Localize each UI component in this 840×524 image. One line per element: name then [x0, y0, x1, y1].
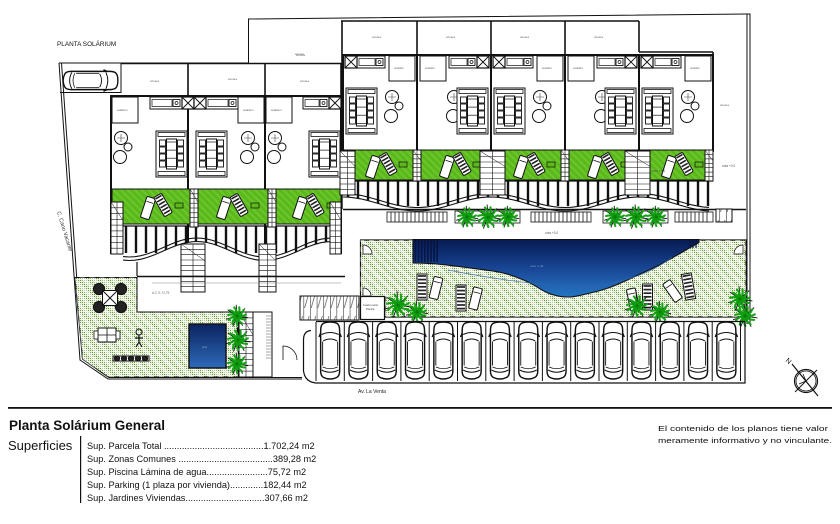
svg-text:A.C.S +2.75: A.C.S +2.75 [152, 291, 170, 295]
svg-text:cota +0.0: cota +0.0 [722, 164, 735, 168]
svg-text:cota +0.0: cota +0.0 [652, 169, 665, 173]
svg-text:PLANTA SOLÁRIUM: PLANTA SOLÁRIUM [57, 39, 116, 48]
svg-text:azotea: azotea [520, 35, 529, 39]
svg-text:El contenido de los planos tie: El contenido de los planos tiene valor [658, 424, 829, 433]
svg-text:vestidor: vestidor [542, 66, 552, 70]
svg-text:Sup. Zonas Comunes ...........: Sup. Zonas Comunes .....................… [87, 454, 316, 464]
svg-text:azotea: azotea [300, 79, 309, 83]
svg-text:azotea: azotea [372, 35, 381, 39]
svg-text:Cuarto motor: Cuarto motor [363, 303, 378, 307]
svg-text:azotea: azotea [446, 35, 455, 39]
svg-text:solarium: solarium [117, 108, 128, 112]
svg-text:azotea: azotea [296, 53, 305, 57]
svg-text:Av. La Venta: Av. La Venta [358, 389, 386, 395]
svg-text:vestidor: vestidor [394, 66, 404, 70]
svg-text:cota -1.40: cota -1.40 [530, 264, 544, 268]
svg-text:vestidor: vestidor [425, 66, 435, 70]
svg-text:Sup. Piscina Lámina de agua...: Sup. Piscina Lámina de agua.............… [87, 467, 306, 477]
svg-text:Sup. Parcela Total ...........: Sup. Parcela Total .....................… [87, 441, 315, 451]
svg-text:azotea: azotea [228, 77, 237, 81]
svg-text:cota +0.0: cota +0.0 [545, 231, 558, 235]
svg-text:solarium: solarium [243, 108, 254, 112]
svg-text:meramente informativo y no vin: meramente informativo y no vinculante. [658, 436, 832, 445]
svg-text:Sup. Jardines Viviendas.......: Sup. Jardines Viviendas.................… [87, 493, 308, 503]
svg-text:Sup. Parking (1 plaza por vivi: Sup. Parking (1 plaza por vivienda).....… [87, 480, 307, 490]
svg-text:pool: pool [202, 345, 207, 349]
svg-text:Piscina: Piscina [366, 307, 375, 311]
svg-text:azotea: azotea [150, 79, 159, 83]
svg-text:vestidor: vestidor [690, 66, 700, 70]
svg-text:vestidor: vestidor [573, 66, 583, 70]
svg-text:Superficies: Superficies [8, 438, 73, 453]
svg-text:solarium: solarium [271, 108, 282, 112]
svg-text:Planta Solárium General: Planta Solárium General [9, 418, 165, 433]
svg-text:azotea: azotea [720, 103, 729, 107]
svg-text:azotea: azotea [594, 35, 603, 39]
